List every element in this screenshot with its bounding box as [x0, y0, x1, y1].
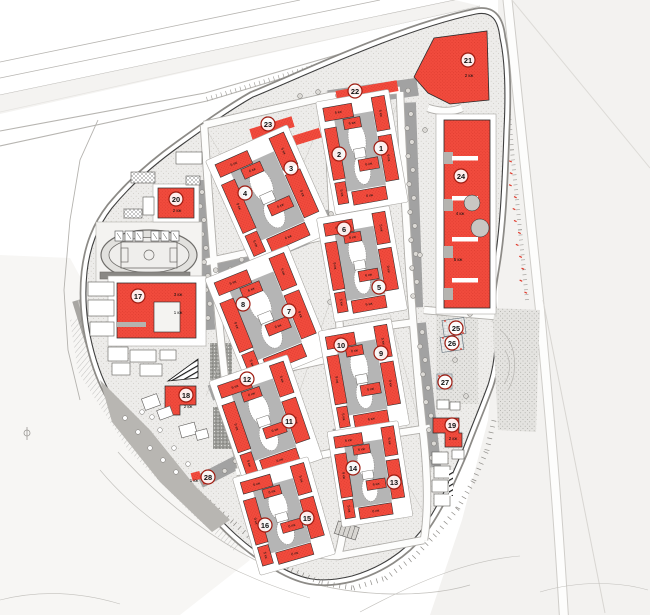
building-24-notch [444, 288, 453, 300]
building-24-notch [444, 152, 453, 164]
block-marker-7: 7 [282, 304, 296, 318]
block-marker-23: 23 [261, 117, 275, 131]
tree-icon [213, 268, 218, 273]
building-24-gap [452, 156, 478, 161]
block-marker-24: 24 [454, 169, 468, 183]
tree-icon [406, 88, 411, 93]
block-marker-27: 27 [438, 375, 452, 389]
marker-number: 27 [441, 378, 449, 387]
block-marker-25: 25 [449, 321, 463, 335]
marker-number: 14 [349, 464, 358, 473]
tree-icon [206, 316, 211, 321]
block-marker-1: 1 [374, 141, 388, 155]
tree-icon [411, 196, 416, 201]
marker-number: 17 [134, 292, 142, 301]
service-building [130, 350, 156, 362]
courtyard-building [362, 470, 374, 480]
service-building [90, 322, 114, 336]
block-marker-8: 8 [236, 297, 250, 311]
courtyard-building [354, 260, 367, 270]
tree-icon [423, 358, 428, 363]
tree-icon [464, 394, 469, 399]
block-marker-22: 22 [348, 84, 362, 98]
tree-icon [316, 90, 321, 95]
block-marker-12: 12 [240, 372, 254, 386]
tree-icon [412, 224, 417, 229]
block-marker-21: 21 [461, 53, 475, 67]
tree-icon [204, 246, 209, 251]
tree-icon [426, 428, 431, 433]
service-building [140, 364, 162, 376]
tree-icon [429, 413, 434, 418]
tree-icon [202, 260, 207, 265]
marker-number: 21 [464, 56, 472, 65]
garage-block [186, 176, 200, 185]
service-building [450, 402, 460, 410]
tree-icon [410, 140, 415, 145]
marker-number: 20 [172, 195, 180, 204]
marker-number: 8 [241, 300, 245, 309]
marker-number: 5 [377, 283, 381, 292]
tree-icon [424, 400, 429, 405]
block-marker-17: 17 [131, 289, 145, 303]
tree-icon [200, 190, 205, 195]
tree-icon [426, 385, 431, 390]
building-24-gap [452, 278, 478, 283]
school-wing [117, 322, 146, 327]
service-building [108, 347, 128, 361]
floor-label: 2 кж [184, 404, 193, 409]
tree-icon [420, 330, 425, 335]
building-24-gap [452, 237, 478, 242]
tree-icon [406, 154, 411, 159]
floor-label: 2 кж [465, 73, 474, 78]
block-marker-26: 26 [445, 336, 459, 350]
marker-number: 25 [452, 324, 460, 333]
master-plan-svg: 6 кж5 кж9 кж9 кж6 кж5 кж6 кж6 кж6 кж5 кж… [0, 0, 650, 615]
tree-icon [174, 470, 179, 475]
block-marker-18: 18 [179, 388, 193, 402]
tree-icon [405, 126, 410, 131]
tree-icon [414, 279, 419, 284]
marker-number: 16 [261, 521, 269, 530]
tree-icon [158, 428, 163, 433]
tree-icon [140, 410, 145, 415]
parking-strip [449, 470, 453, 496]
marker-number: 23 [264, 120, 272, 129]
residential-cluster-13-14: 6 кж5 кж9 кж9 кж6 кж5 кж6 кж6 кж [327, 421, 413, 528]
block-marker-10: 10 [334, 338, 348, 352]
service-building [176, 152, 202, 164]
floor-label: 2 кж [173, 208, 182, 213]
school-courtyard [154, 302, 180, 332]
service-building [437, 400, 449, 409]
marker-number: 3 [289, 164, 293, 173]
building-24-notch [444, 246, 453, 258]
tree-icon [136, 430, 141, 435]
tree-icon [150, 415, 155, 420]
tree-icon [410, 168, 415, 173]
marker-number: 6 [342, 225, 346, 234]
marker-number: 11 [285, 417, 293, 426]
service-building [88, 300, 114, 316]
tree-icon [207, 301, 212, 306]
tree-icon [222, 469, 227, 474]
service-building [434, 466, 450, 478]
service-building [432, 452, 448, 464]
marker-number: 22 [351, 87, 359, 96]
tree-icon [410, 266, 415, 271]
tree-icon [423, 128, 428, 133]
tree-icon [186, 462, 191, 467]
marker-number: 15 [303, 514, 311, 523]
block-marker-11: 11 [282, 414, 296, 428]
block-marker-20: 20 [169, 192, 183, 206]
marker-number: 18 [182, 391, 190, 400]
service-building [160, 350, 176, 360]
block-marker-28: 28 [201, 470, 215, 484]
floor-label: 5 кж [454, 257, 463, 262]
service-building [434, 494, 450, 506]
tree-icon [418, 253, 423, 258]
marker-number: 28 [204, 473, 212, 482]
floor-label: 1 кж [190, 478, 199, 483]
building-24-notch [444, 199, 453, 211]
courtyard-building [353, 147, 366, 158]
tree-icon [453, 358, 458, 363]
courtyard-building [356, 374, 369, 385]
site-plan-canvas: 6 кж5 кж9 кж9 кж6 кж5 кж6 кж6 кж6 кж5 кж… [0, 0, 650, 615]
tree-icon [161, 458, 166, 463]
tree-icon [421, 372, 426, 377]
marker-number: 10 [337, 341, 345, 350]
service-building [452, 450, 464, 459]
block-marker-4: 4 [238, 186, 252, 200]
tree-icon [409, 112, 414, 117]
service-building [432, 480, 448, 492]
block-marker-3: 3 [284, 161, 298, 175]
tree-icon [172, 446, 177, 451]
tree-icon [298, 94, 303, 99]
block-marker-19: 19 [445, 418, 459, 432]
marker-number: 9 [379, 349, 383, 358]
marker-number: 2 [337, 150, 341, 159]
tree-icon [123, 416, 128, 421]
marker-number: 24 [457, 172, 466, 181]
service-building [143, 197, 154, 215]
service-building [112, 363, 130, 375]
block-marker-9: 9 [374, 346, 388, 360]
marker-number: 19 [448, 421, 456, 430]
block-marker-13: 13 [387, 475, 401, 489]
tree-icon [408, 210, 413, 215]
marker-number: 1 [379, 144, 383, 153]
block-marker-6: 6 [337, 222, 351, 236]
garage-block [131, 172, 155, 183]
marker-number: 13 [390, 478, 398, 487]
block-marker-2: 2 [332, 147, 346, 161]
floor-label: 2 кж [449, 436, 458, 441]
garage-block [124, 209, 142, 218]
block-marker-5: 5 [372, 280, 386, 294]
floor-label: 1 кж [174, 310, 183, 315]
block-marker-15: 15 [300, 511, 314, 525]
block-marker-14: 14 [346, 461, 360, 475]
tree-icon [409, 238, 414, 243]
service-building [88, 282, 114, 296]
marker-number: 12 [243, 375, 251, 384]
floor-label: 3 кж [174, 292, 183, 297]
tree-icon [239, 257, 244, 262]
tree-icon [411, 294, 416, 299]
tree-icon [418, 344, 423, 349]
tree-icon [148, 446, 153, 451]
park-zone-right [492, 308, 540, 432]
block-marker-16: 16 [258, 518, 272, 532]
tree-icon [202, 218, 207, 223]
tree-icon [432, 441, 437, 446]
tree-icon [407, 182, 412, 187]
marker-number: 26 [448, 339, 456, 348]
floor-label: 4 кж [456, 211, 465, 216]
marker-number: 7 [287, 307, 291, 316]
